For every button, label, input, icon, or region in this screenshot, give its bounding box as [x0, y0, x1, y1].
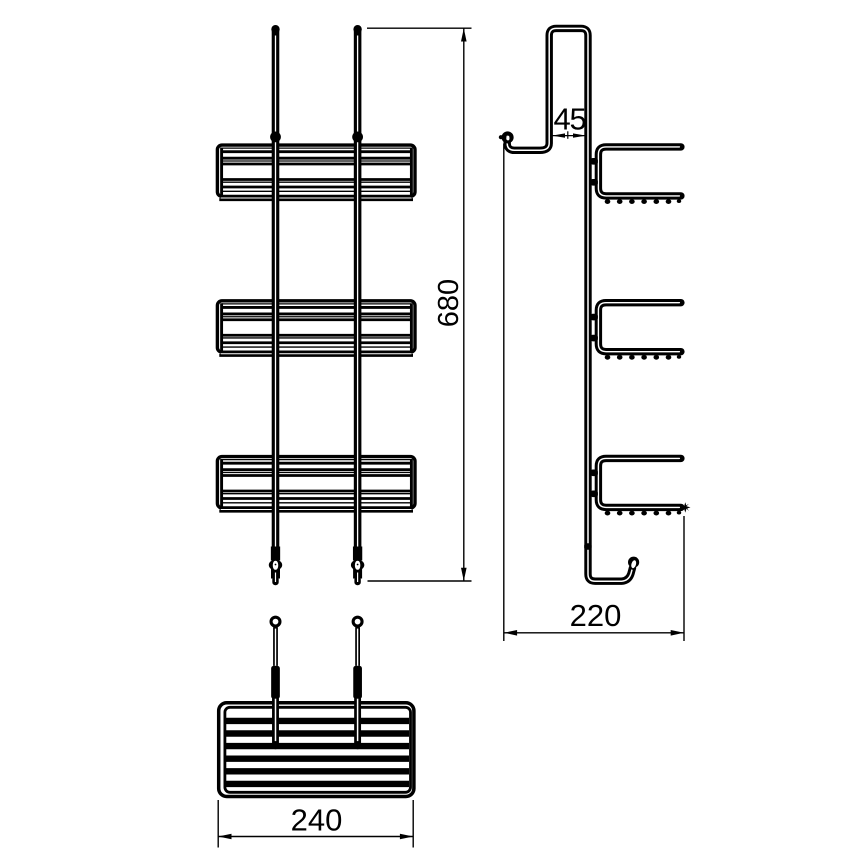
svg-text:680: 680 [433, 279, 465, 327]
svg-text:220: 220 [570, 598, 622, 633]
svg-text:240: 240 [291, 803, 343, 838]
svg-text:45: 45 [553, 101, 585, 136]
